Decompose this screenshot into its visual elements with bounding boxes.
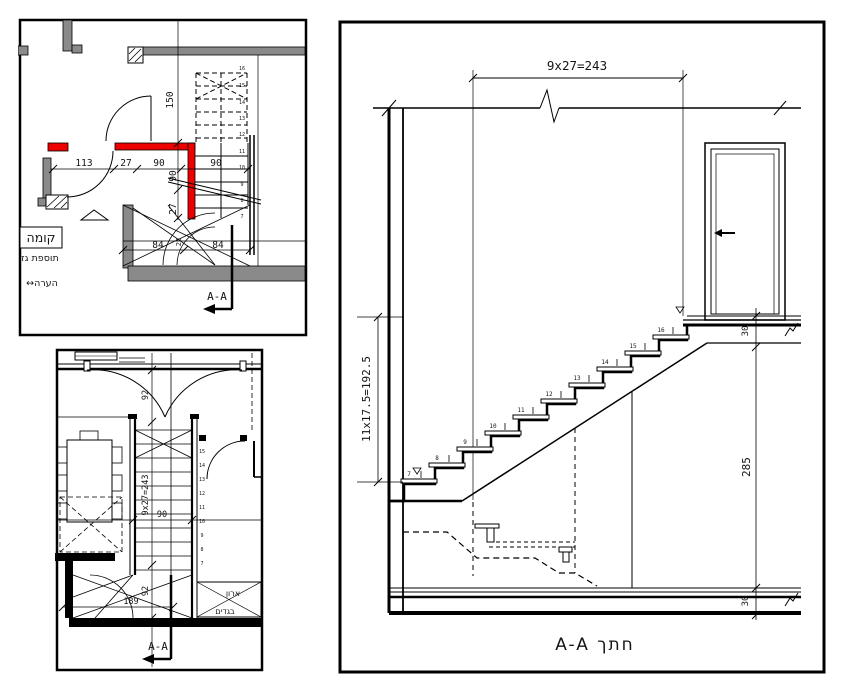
svg-text:15: 15 [239, 83, 245, 89]
stair-railing [250, 55, 258, 266]
svg-text:7: 7 [407, 471, 411, 478]
direction-triangle [81, 210, 108, 220]
dim-run: 9x27=243 [141, 475, 151, 516]
dim-189: 189 [123, 597, 138, 607]
dim-90a: 90 [153, 158, 165, 169]
svg-text:13: 13 [239, 116, 245, 122]
dim-run: 9x27=243 [547, 58, 607, 73]
svg-text:9: 9 [240, 182, 243, 188]
dim-90v: 90 [168, 170, 179, 182]
closet-label-1: ארון [226, 589, 240, 598]
section-frame [340, 22, 824, 672]
dim-92-top: 92 [141, 390, 151, 400]
hidden-lower-flight [403, 392, 632, 588]
closet-label-2: בגדים [215, 607, 235, 616]
entry-wall [57, 352, 262, 371]
svg-text:9: 9 [200, 533, 203, 539]
door [705, 143, 785, 320]
svg-text:12: 12 [199, 491, 205, 497]
dim-height: 285 [740, 457, 753, 477]
dim-slab-bottom: 30 [741, 596, 751, 607]
dim-27: 27 [120, 158, 131, 169]
double-door-swing [87, 370, 242, 417]
height-dimensions: 30 285 30 [740, 308, 760, 620]
section-title: A-A חתך [555, 635, 634, 655]
hatched-column [128, 47, 143, 63]
wardrobe-closet: ארון בגדים [197, 582, 261, 617]
dim-84a: 84 [152, 240, 164, 251]
dim-84b: 84 [212, 240, 224, 251]
upper-plan-frame [20, 20, 306, 335]
svg-text:13: 13 [199, 477, 205, 483]
svg-text:16: 16 [657, 327, 665, 334]
svg-text:8: 8 [200, 547, 203, 553]
svg-text:8: 8 [435, 455, 439, 462]
dim-113: 113 [75, 158, 92, 169]
svg-text:12: 12 [545, 391, 553, 398]
upper-floor-plan: 113 27 90 90 150 90 27 84 84 25 16 15 14… [18, 18, 308, 338]
svg-text:11: 11 [239, 149, 245, 155]
ground-floor-slab [389, 588, 801, 613]
dining-table [57, 431, 122, 522]
svg-text:14: 14 [601, 359, 609, 366]
section-mark-label: A-A [148, 640, 168, 653]
svg-text:7: 7 [240, 214, 243, 220]
svg-text:15: 15 [199, 449, 205, 455]
section-mark-label: A-A [207, 290, 227, 303]
note-label: ↔הערה [26, 278, 58, 289]
svg-text:13: 13 [573, 375, 581, 382]
svg-text:10: 10 [489, 423, 497, 430]
left-wall [389, 108, 403, 613]
lower-plan-step-numbers: 16 15 14 13 12 11 10 9 8 7 [199, 435, 205, 567]
section-step-numbers: 7 8 9 10 11 12 13 14 15 16 [407, 327, 665, 478]
stair-walls [57, 414, 199, 622]
svg-text:11: 11 [199, 505, 205, 511]
svg-text:10: 10 [239, 165, 245, 171]
ceiling-line [373, 90, 801, 122]
svg-text:14: 14 [199, 463, 205, 469]
dim-slab-top: 30 [741, 326, 751, 337]
upper-plan-labels: קומה תוספת גז ↔הערה [20, 227, 62, 289]
dim-90b: 90 [210, 158, 222, 169]
winder-stairs [123, 178, 305, 266]
dim-90: 90 [157, 510, 167, 520]
svg-text:7: 7 [200, 561, 203, 567]
section-view: 9x27=243 [337, 20, 829, 675]
hatched-block [46, 195, 68, 209]
svg-text:15: 15 [629, 343, 637, 350]
lower-floor-plan: 16 15 14 13 12 11 10 9 8 7 [55, 345, 308, 683]
addition-label: תוספת גז [21, 253, 58, 264]
run-dimension: 9x27=243 [469, 58, 687, 82]
svg-text:14: 14 [239, 100, 245, 106]
svg-text:8: 8 [240, 198, 243, 204]
floor-label: קומה [27, 230, 56, 245]
dim-92-mid: 92 [141, 586, 151, 596]
svg-text:16: 16 [239, 66, 245, 72]
side-room-door [199, 435, 261, 479]
dim-25: 25 [175, 238, 183, 246]
door-handle-icon [714, 229, 735, 237]
rise-dimension: 11x17.5=192.5 [357, 313, 403, 486]
stair-steps [389, 326, 707, 501]
svg-text:11: 11 [517, 407, 525, 414]
dim-27v: 27 [168, 203, 179, 214]
dim-rise: 11x17.5=192.5 [360, 356, 373, 442]
svg-text:12: 12 [239, 132, 245, 138]
dim-150: 150 [165, 91, 176, 108]
svg-text:9: 9 [463, 439, 467, 446]
upper-plan-step-numbers: 16 15 14 13 12 11 10 9 8 7 [239, 66, 245, 220]
